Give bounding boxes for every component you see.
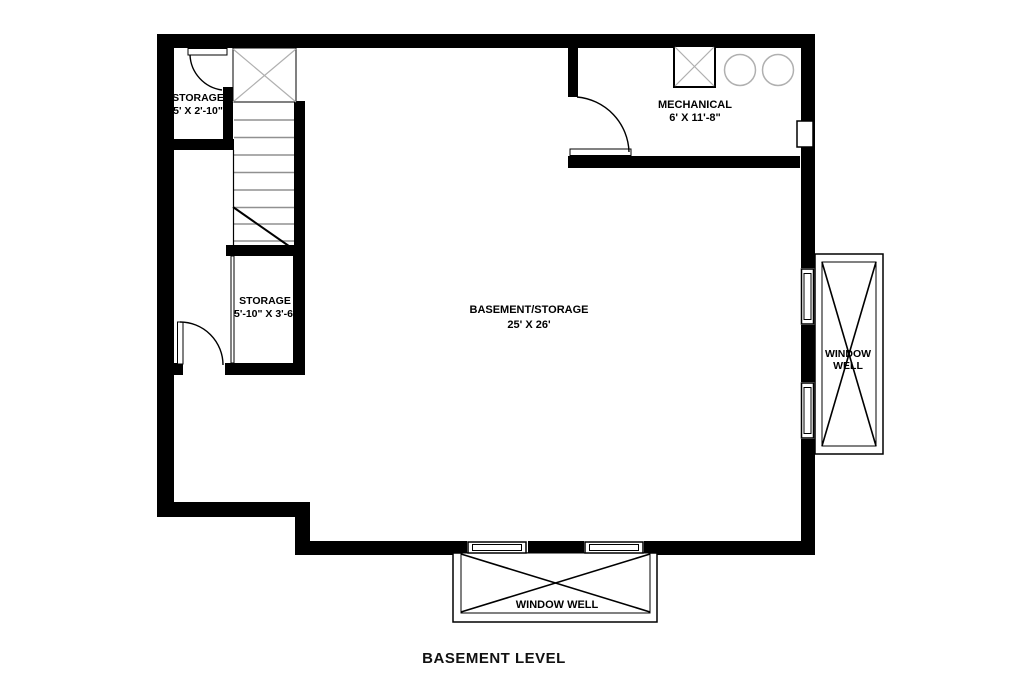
floorplan-canvas: WINDOW WELL WINDOW WELL [0, 0, 1024, 682]
wall-storage2-bottom [225, 363, 305, 375]
mechanical-dims: 6' X 11'-8" [669, 112, 720, 124]
right-window-1-pane [804, 274, 811, 320]
electrical-panel [797, 121, 813, 147]
window-well-bottom: WINDOW WELL [453, 553, 657, 622]
storage1-dims: 5' X 2'-10" [173, 105, 223, 117]
bottom-window-1-pane [473, 545, 522, 551]
wall-stair-right [294, 101, 305, 245]
basement-dims: 25' X 26' [507, 319, 551, 331]
window-well-right-label-line2: WELL [833, 360, 863, 372]
wall-step [295, 502, 310, 555]
water-heater-circle [725, 55, 756, 86]
wall-storage2-door-stub [173, 363, 183, 375]
mechanical-door-swing-arc [577, 97, 629, 152]
right-window-2-pane [804, 388, 811, 434]
storage2-door-leaf [178, 322, 184, 364]
storage1-name: STORAGE [172, 92, 224, 104]
storage2-door-swing-arc [180, 322, 223, 365]
mechanical-name: MECHANICAL [658, 99, 732, 111]
basement-floorplan: WINDOW WELL WINDOW WELL [0, 0, 1024, 682]
wall-bottom-left-ledge [157, 502, 310, 517]
furnace-circle [763, 55, 794, 86]
window-well-right: WINDOW WELL [815, 254, 883, 454]
stair-break-line [233, 207, 296, 251]
staircase [233, 48, 296, 251]
wall-left [157, 34, 174, 517]
storage2-dims: 5'-10" X 3'-6" [234, 308, 298, 320]
mechanical-door-leaf [570, 149, 631, 156]
wall-mechanical-bottom [568, 156, 800, 168]
wall-storage1-bottom [157, 139, 234, 150]
stair-treads [234, 120, 294, 241]
mechanical-equipment [674, 46, 813, 147]
basement-name: BASEMENT/STORAGE [470, 304, 589, 316]
wall-mechanical-stub [568, 48, 578, 97]
wall-top [157, 34, 815, 48]
window-well-right-label-line1: WINDOW [825, 348, 871, 360]
bottom-window-2-pane [590, 545, 639, 551]
plan-title: BASEMENT LEVEL [422, 650, 566, 667]
room-labels: STORAGE 5' X 2'-10" STORAGE 5'-10" X 3'-… [172, 92, 732, 331]
window-well-bottom-label: WINDOW WELL [516, 599, 599, 611]
storage1-door-swing-arc [190, 55, 222, 90]
storage1-door-leaf [188, 49, 227, 56]
wall-stair-left-stub [223, 87, 233, 150]
storage2-name: STORAGE [239, 295, 291, 307]
